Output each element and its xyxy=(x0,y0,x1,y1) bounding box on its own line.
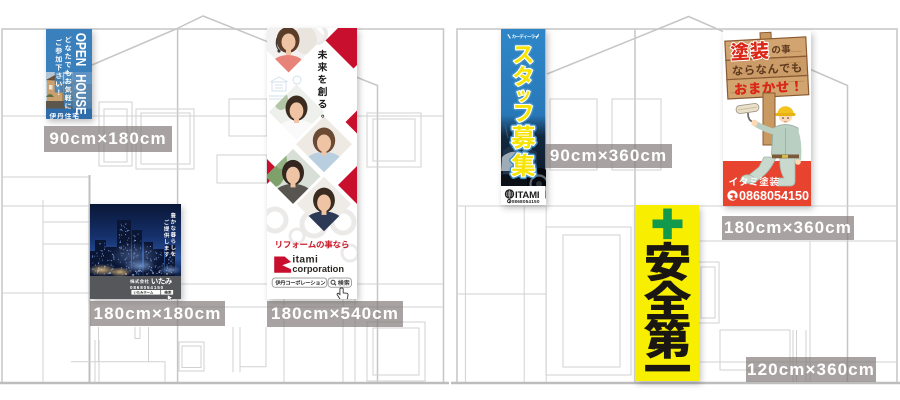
svg-text:corporation: corporation xyxy=(292,264,344,274)
svg-text:HOUSE: HOUSE xyxy=(71,74,88,115)
svg-text:0868054150: 0868054150 xyxy=(739,189,809,203)
svg-text:0868054150: 0868054150 xyxy=(130,284,164,289)
svg-text:0868054150: 0868054150 xyxy=(512,199,540,204)
svg-text:OPEN: OPEN xyxy=(71,33,88,67)
